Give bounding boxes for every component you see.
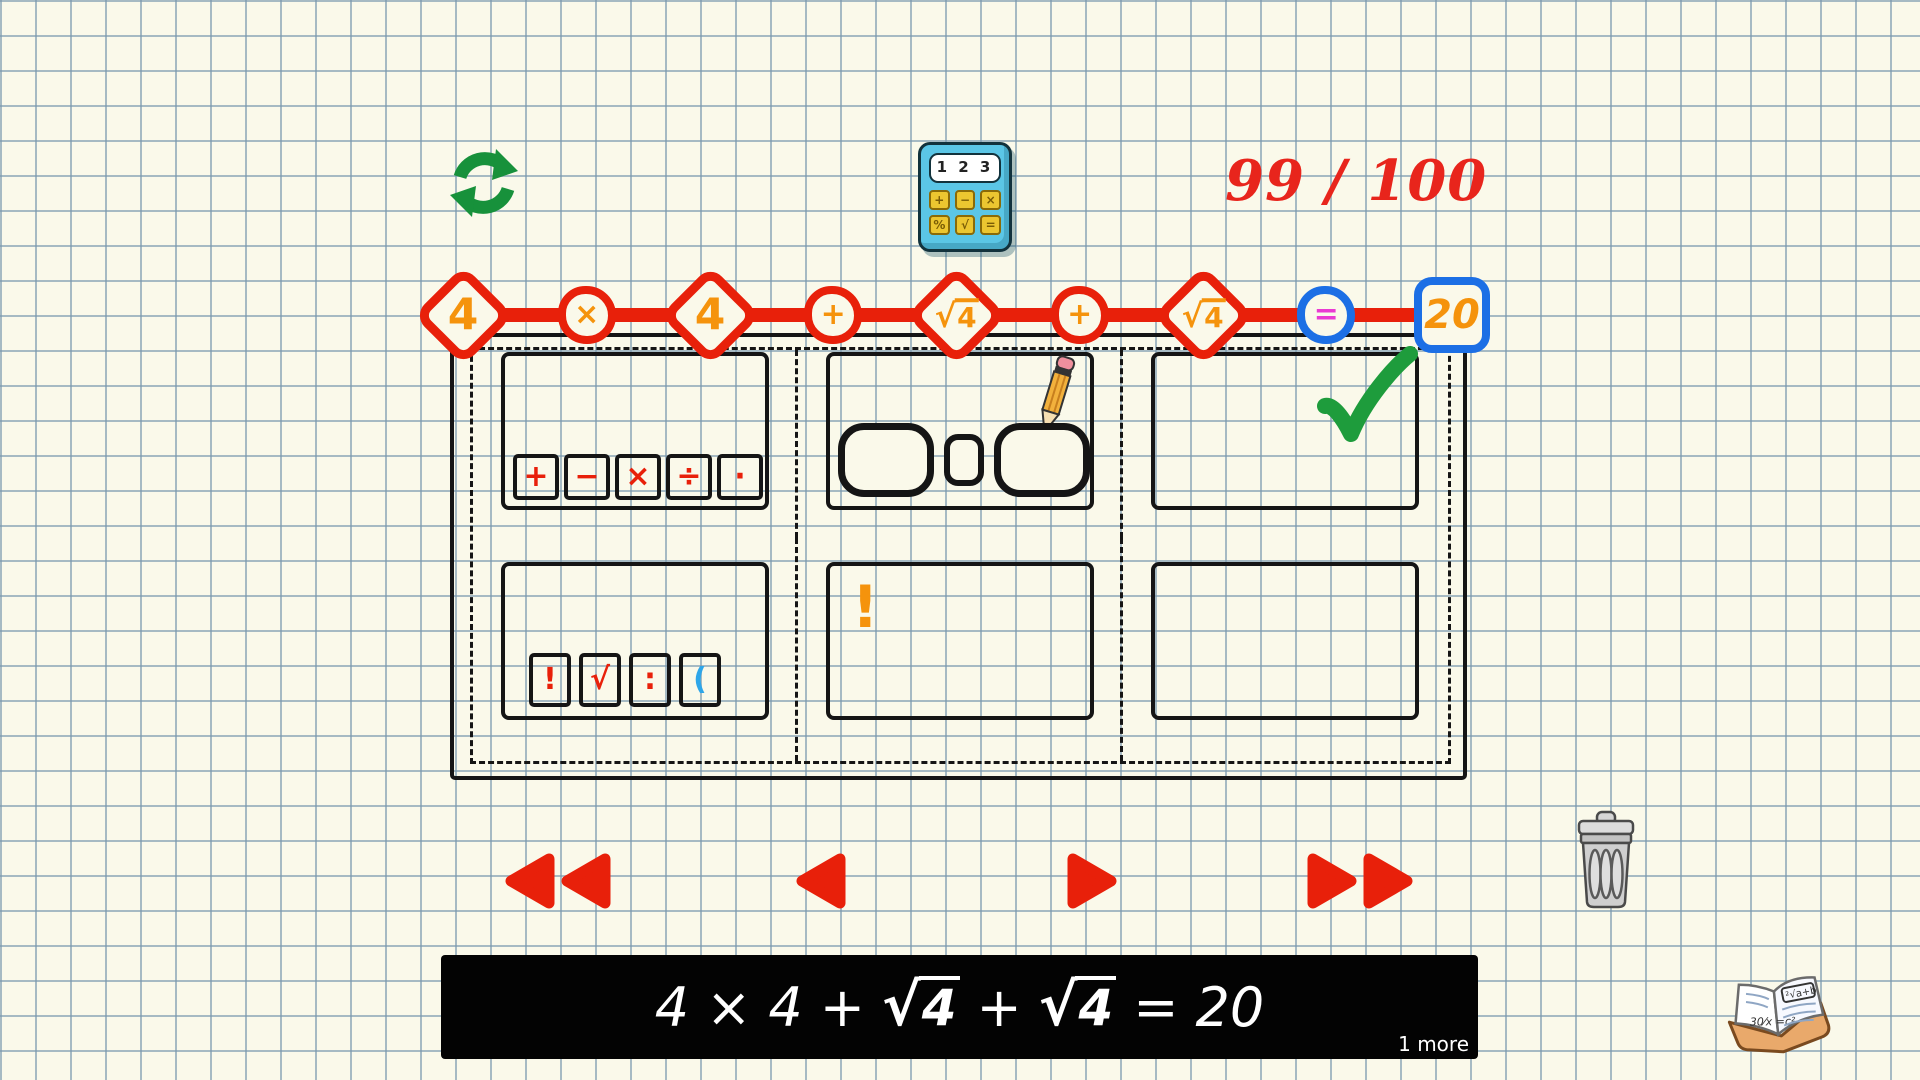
fast-forward-icon <box>1301 849 1419 913</box>
calculator-button[interactable]: 1 2 3 +−×%√= <box>918 142 1012 252</box>
op-button-multiply[interactable]: × <box>615 454 661 500</box>
svg-text:30⁄x =c²: 30⁄x =c² <box>1750 1015 1796 1029</box>
op-button-minus[interactable]: − <box>564 454 610 500</box>
trash-button[interactable] <box>1572 810 1640 912</box>
calc-key: + <box>929 190 950 210</box>
cell-bottom-right <box>1123 538 1448 761</box>
op-button-plus[interactable]: + <box>513 454 559 500</box>
refresh-icon <box>447 145 521 221</box>
calc-key: × <box>980 190 1001 210</box>
calculator-display: 1 2 3 <box>929 153 1001 183</box>
equation-token-plus[interactable]: + <box>1051 286 1109 344</box>
puzzle-grid: +−×÷· <box>470 347 1451 764</box>
cell-top-left: +−×÷· <box>473 350 798 538</box>
nav-forward-button[interactable] <box>1061 849 1121 913</box>
op-button-ratio[interactable]: : <box>629 653 671 707</box>
calculator-keys: +−×%√= <box>929 190 1001 235</box>
equation-token-plus[interactable]: + <box>804 286 862 344</box>
cell-top-right <box>1123 350 1448 538</box>
op-button-square-root[interactable]: √ <box>579 653 621 707</box>
forward-icon <box>1061 849 1121 913</box>
more-solutions-label: 1 more <box>1398 1032 1469 1056</box>
hint-exclamation: ! <box>852 578 878 636</box>
nav-back-button[interactable] <box>792 849 852 913</box>
calc-key: − <box>955 190 976 210</box>
calc-key: % <box>929 215 950 235</box>
equation-segment: 20 <box>1195 976 1264 1039</box>
formula-book-button[interactable]: 30⁄x =c² ²√a+b <box>1718 958 1840 1058</box>
equation-segment: √4 <box>882 976 959 1038</box>
equation-segment: × <box>706 976 751 1039</box>
equation-token-result-20[interactable]: 20 <box>1414 277 1490 353</box>
equation-token-number-4[interactable]: 4 <box>660 265 760 365</box>
parentheses-box <box>826 352 1094 510</box>
hint-box: ! <box>826 562 1094 720</box>
advanced-operators-box: !√:( <box>501 562 769 720</box>
cell-top-middle <box>798 350 1123 538</box>
solution-equation: 4×4+√4+√4=20 <box>441 955 1478 1059</box>
op-button-factorial[interactable]: ! <box>529 653 571 707</box>
equation-token-sqrt-4[interactable]: √4 <box>1153 265 1253 365</box>
equation-token-sqrt-4[interactable]: √4 <box>906 265 1006 365</box>
equation-segment: √4 <box>1039 976 1116 1038</box>
rewind-icon <box>499 849 617 913</box>
paren-slot-left[interactable] <box>838 423 934 497</box>
refresh-button[interactable] <box>447 145 521 221</box>
op-button-decimal-point[interactable]: · <box>717 454 763 500</box>
equation-segment: + <box>820 976 865 1039</box>
paren-slot-right[interactable] <box>994 423 1090 497</box>
nav-rewind-button[interactable] <box>499 849 617 913</box>
op-button-divide[interactable]: ÷ <box>666 454 712 500</box>
equation-segment: 4 <box>768 976 802 1039</box>
basic-operator-buttons: +−×÷· <box>513 454 763 500</box>
trash-icon <box>1572 810 1640 912</box>
op-button-open-paren[interactable]: ( <box>679 653 721 707</box>
solution-bar: 4×4+√4+√4=20 1 more <box>441 955 1478 1059</box>
paren-slot-center[interactable] <box>944 434 984 486</box>
equation-token-equals[interactable]: = <box>1297 286 1355 344</box>
result-box <box>1151 352 1419 510</box>
equation-token-multiply[interactable]: × <box>558 286 616 344</box>
score-label: 99 / 100 <box>1225 148 1505 214</box>
cell-bottom-left: !√:( <box>473 538 798 761</box>
empty-box <box>1151 562 1419 720</box>
game-screen: 1 2 3 +−×%√= 99 / 100 4×4+√4+√4=20 +−×÷· <box>0 0 1920 1080</box>
equation-token-row: 4×4+√4+√4=20 <box>428 264 1490 366</box>
equation-segment: = <box>1133 976 1178 1039</box>
parentheses-slots <box>838 423 1090 497</box>
back-icon <box>792 849 852 913</box>
equation-token-number-4[interactable]: 4 <box>413 265 513 365</box>
calc-key: = <box>980 215 1001 235</box>
cell-bottom-middle: ! <box>798 538 1123 761</box>
nav-fast-forward-button[interactable] <box>1301 849 1419 913</box>
advanced-operator-buttons: !√:( <box>529 653 721 707</box>
puzzle-board: +−×÷· <box>450 333 1467 780</box>
basic-operators-box: +−×÷· <box>501 352 769 510</box>
calc-key: √ <box>955 215 976 235</box>
book-icon: 30⁄x =c² ²√a+b <box>1718 958 1840 1058</box>
equation-segment: 4 <box>655 976 689 1039</box>
equation-segment: + <box>977 976 1022 1039</box>
